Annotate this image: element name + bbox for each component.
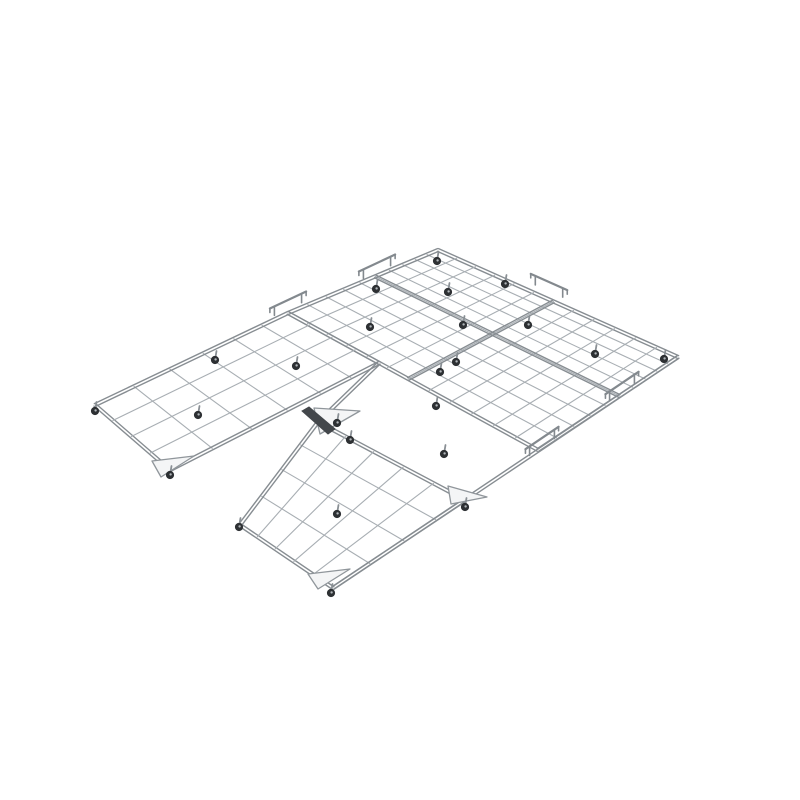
panel-frame-edge: [319, 421, 466, 499]
caster-hub: [527, 323, 529, 325]
caster-hub: [663, 357, 665, 359]
caster-wheel: [211, 351, 219, 364]
bottom-panel-rear-right-gusset: [448, 486, 487, 504]
caster-hub: [462, 323, 464, 325]
corner-gussets: [152, 408, 487, 589]
caster-hub: [464, 505, 466, 507]
panel-frame-edge: [317, 423, 464, 501]
caster-wheel: [372, 280, 380, 293]
product-image-canvas: [0, 0, 800, 800]
caster-wheel: [194, 406, 202, 419]
caster-hub: [447, 290, 449, 292]
grid-wire: [388, 293, 534, 368]
bracket-bar: [605, 372, 638, 394]
grid-wire: [516, 347, 657, 437]
grid-panel-main-section: [287, 249, 679, 452]
caster-hub: [435, 404, 437, 406]
caster-hub: [169, 473, 171, 475]
caster-hub: [594, 352, 596, 354]
grid-wire: [262, 496, 370, 563]
casters: [91, 252, 668, 597]
caster-hub: [455, 360, 457, 362]
caster-hub: [336, 512, 338, 514]
caster-wheel: [591, 345, 599, 358]
bracket-bar: [531, 274, 568, 290]
caster-hub: [439, 370, 441, 372]
grid-wire: [408, 301, 553, 378]
panel-frame-edge: [96, 314, 289, 406]
caster-hub: [504, 282, 506, 284]
caster-hub: [443, 452, 445, 454]
caster-hub: [197, 413, 199, 415]
panel-frame-edge: [287, 314, 378, 364]
caster-hub: [238, 525, 240, 527]
caster-wheel: [333, 505, 341, 518]
wire-grid-platform-render: [0, 0, 800, 800]
grid-wire: [131, 337, 332, 436]
caster-hub: [369, 325, 371, 327]
grid-wire: [472, 329, 615, 414]
grid-wire: [326, 297, 573, 426]
panel-frame-edge: [287, 249, 437, 312]
caster-hub: [94, 409, 96, 411]
grid-wire: [282, 470, 404, 541]
caster-hub: [375, 287, 377, 289]
caster-hub: [436, 259, 438, 261]
grid-panel-bottom-panel: [239, 421, 466, 590]
grid-wire: [360, 283, 605, 406]
caster-hub: [330, 591, 332, 593]
panel-frame-edge: [94, 312, 287, 404]
panel-frame-edge: [239, 421, 317, 524]
panel-frame-edge: [96, 404, 171, 469]
caster-hub: [295, 364, 297, 366]
grid-wire: [234, 339, 321, 393]
caster-hub: [214, 358, 216, 360]
grid-wire: [301, 445, 436, 520]
caster-wheel: [292, 357, 300, 370]
frame-rails: [317, 356, 679, 589]
grid-wire: [113, 325, 310, 421]
caster-wheel: [440, 445, 448, 458]
caster-wheel: [432, 397, 440, 410]
edge-bracket-3: [531, 274, 568, 297]
caster-hub: [349, 438, 351, 440]
caster-hub: [336, 421, 338, 423]
grid-wire: [494, 338, 636, 426]
grid-wire: [262, 325, 351, 377]
grid-wire: [307, 258, 456, 323]
caster-wheel: [346, 431, 354, 444]
grid-panel-left-panel: [94, 312, 380, 472]
grid-wire: [344, 290, 590, 416]
edge-bracket-2: [359, 255, 395, 279]
